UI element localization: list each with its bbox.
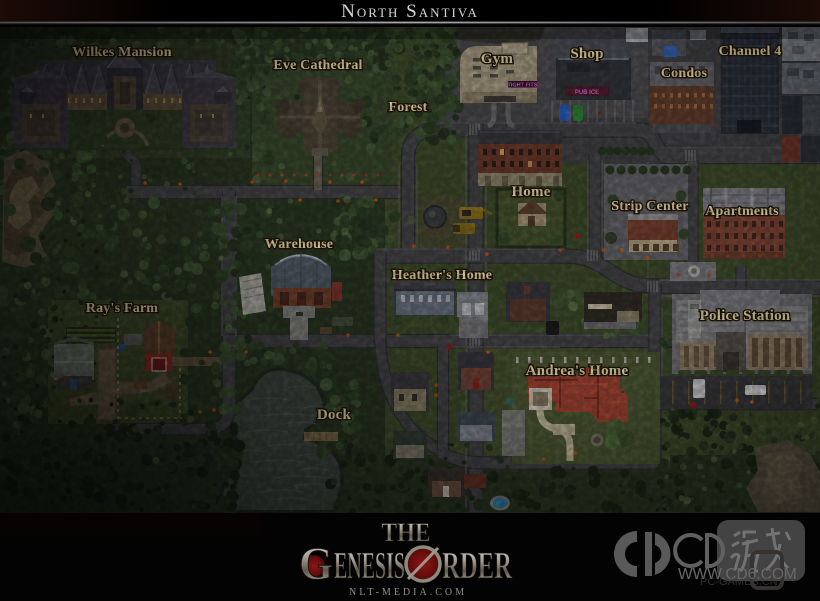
- svg-text:ENESIS: ENESIS: [334, 545, 405, 587]
- svg-text:THE: THE: [382, 518, 431, 547]
- svg-text:NLT-MEDIA.COM: NLT-MEDIA.COM: [349, 587, 467, 598]
- svg-text:North Santiva: North Santiva: [341, 1, 479, 22]
- svg-text:G: G: [299, 538, 333, 590]
- svg-text:RDER: RDER: [442, 545, 512, 587]
- svg-text:PC-GAMES.CN: PC-GAMES.CN: [700, 576, 778, 588]
